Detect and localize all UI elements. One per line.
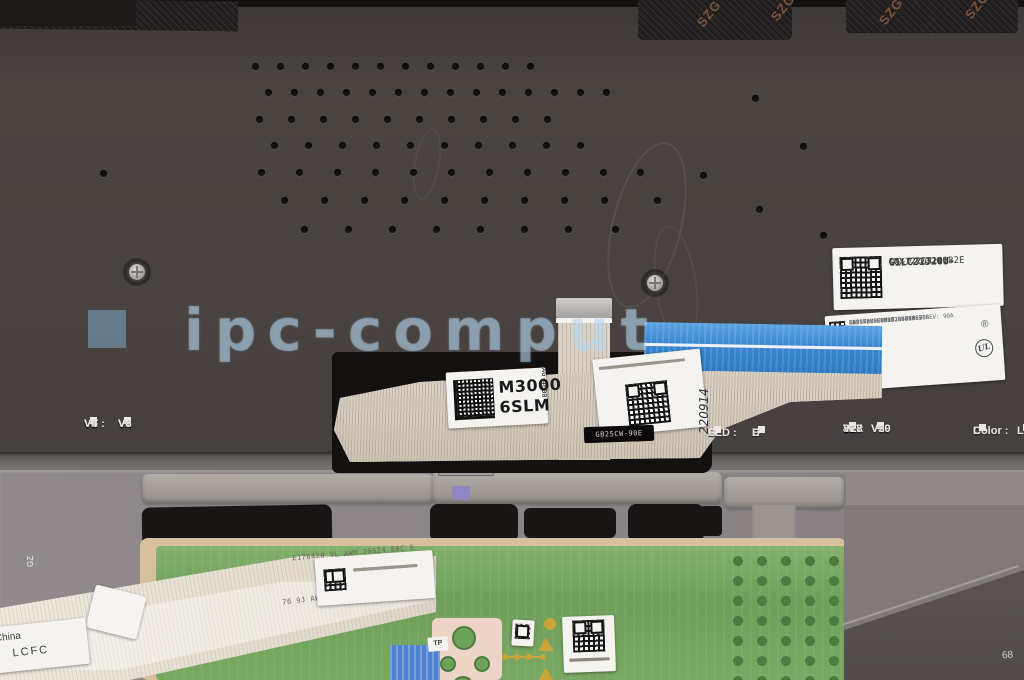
- inspection-item-label: V4: [84, 417, 97, 432]
- inspection-item-label: L: [973, 424, 980, 439]
- inspection-marks-layer: VF :V1V2V3V4V5V6V7V8LED :ABCDELI :323438…: [0, 0, 1024, 680]
- inspection-item-label: V8: [118, 417, 131, 432]
- inspection-item-label: V28: [843, 422, 863, 437]
- inspection-item-label: E: [752, 426, 759, 441]
- checkbox-mark-icon: [979, 424, 986, 431]
- inspection-item-label: V30: [871, 422, 891, 437]
- inspection-item-label: L: [1017, 424, 1024, 439]
- inspection-item-label: C: [708, 426, 716, 441]
- photo-laptop-keyboard-backplate: 102-021J2LHD01 G1LC21J20U- CQX1220311132…: [0, 0, 1024, 680]
